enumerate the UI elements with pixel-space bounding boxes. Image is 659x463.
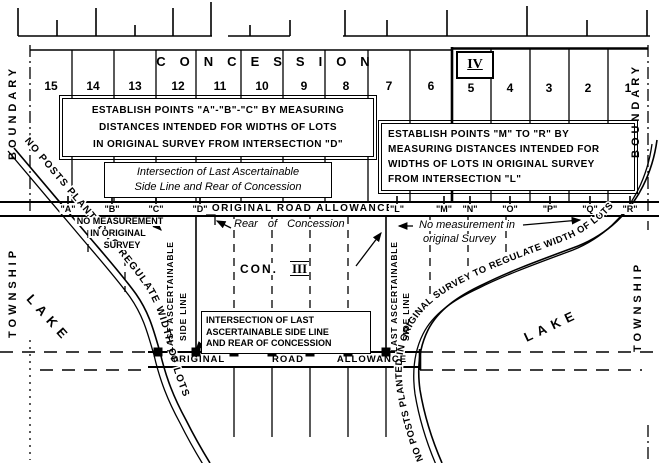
lot-number: 6 [428, 79, 435, 93]
lot-number: 5 [468, 81, 475, 95]
lot-number: 3 [546, 81, 553, 95]
left-boundary-label: BOUNDARY [8, 65, 19, 160]
lot-number: 12 [171, 79, 184, 93]
lot-number: 13 [128, 79, 141, 93]
note-line: Side Line and Rear of Concession [105, 180, 331, 195]
note-line: ESTABLISH POINTS "M" TO "R" BY [388, 127, 632, 142]
note-intersection-top: Intersection of Last Ascertainable Side … [104, 162, 332, 198]
road-point-d: "D" [191, 204, 208, 214]
concession-iv-numeral-box: IV [456, 51, 494, 79]
road-allowance-top-label: ORIGINAL ROAD ALLOWANCE [210, 204, 396, 214]
road-point-l: "L" [389, 204, 405, 214]
lot-number: 4 [507, 81, 514, 95]
lot-number: 11 [214, 79, 227, 93]
note-line: MEASURING DISTANCES INTENDED FOR [388, 142, 632, 157]
concession-title: CONCESSION [156, 55, 383, 68]
road-point-b: "B" [103, 204, 120, 214]
lot-number: 8 [343, 79, 350, 93]
no-measurement-left-line1: NO MEASUREMENT [75, 217, 166, 226]
road-point-r: "R" [621, 204, 638, 214]
no-measurement-left-line3: SURVEY [102, 241, 143, 250]
lower-lot-lines [234, 367, 386, 437]
road-point-o: "O" [501, 204, 519, 214]
lot-number: 14 [86, 79, 99, 93]
road-bottom-word-original: ORIGINAL [171, 355, 225, 365]
no-measurement-right-line1: No measurement in [417, 220, 517, 231]
note-line: IN ORIGINAL SURVEY FROM INTERSECTION "D" [65, 136, 371, 153]
lot-number: 7 [386, 79, 393, 93]
road-point-m: "M" [435, 204, 453, 214]
side-line-right-label-1: LAST ASCERTAINABLE [390, 241, 399, 352]
lot-number: 2 [585, 81, 592, 95]
right-boundary-label: BOUNDARY [631, 63, 642, 158]
note-intersection-bottom: INTERSECTION OF LAST ASCERTAINABLE SIDE … [201, 311, 371, 354]
note-line: INTERSECTION OF LAST [206, 315, 370, 327]
lot-number: 9 [301, 79, 308, 93]
lot-number: 15 [44, 79, 57, 93]
side-line-left-label-1: LAST ASCERTAINABLE [166, 241, 175, 352]
note-line: AND REAR OF CONCESSION [206, 338, 370, 350]
road-point-q: "Q" [581, 204, 599, 214]
note-establish-abc: ESTABLISH POINTS "A"-"B"-"C" BY MEASURIN… [62, 98, 374, 157]
no-measurement-right-line2: original Survey [421, 234, 498, 245]
survey-plan-diagram: NO POSTS PLANTED TO REGULATE WIDTH OF LO… [0, 0, 659, 463]
side-line-left-label-2: SIDE LINE [179, 292, 188, 341]
left-township-label: TOWNSHIP [8, 247, 19, 338]
road-point-a: "A" [59, 204, 76, 214]
top-tick-marks [18, 2, 650, 36]
road-point-c: "C" [147, 204, 164, 214]
road-point-p: "P" [542, 204, 559, 214]
concession-iv-numeral: IV [467, 57, 483, 73]
note-establish-mr: ESTABLISH POINTS "M" TO "R" BY MEASURING… [381, 123, 635, 191]
right-township-label: TOWNSHIP [633, 261, 644, 352]
road-bottom-word-road: ROAD [272, 355, 304, 365]
road-bottom-word-allowance: ALLOWANCE [337, 355, 407, 365]
rear-of-concession-label: Rear of Concession [232, 219, 347, 230]
con-label: CON. [238, 263, 280, 275]
note-line: DISTANCES INTENDED FOR WIDTHS OF LOTS [65, 119, 371, 136]
note-line: WIDTHS OF LOTS IN ORIGINAL SURVEY [388, 157, 632, 172]
lot-number: 10 [255, 79, 268, 93]
note-line: ESTABLISH POINTS "A"-"B"-"C" BY MEASURIN… [65, 102, 371, 119]
note-line: Intersection of Last Ascertainable [105, 165, 331, 180]
side-line-right-label-2: SIDE LINE [402, 292, 411, 341]
note-line: FROM INTERSECTION "L" [388, 172, 632, 187]
concession-iii-numeral: III [290, 261, 309, 276]
road-point-n: "N" [461, 204, 478, 214]
note-line: ASCERTAINABLE SIDE LINE [206, 327, 370, 339]
no-measurement-left-line2: IN ORIGINAL [88, 229, 148, 238]
